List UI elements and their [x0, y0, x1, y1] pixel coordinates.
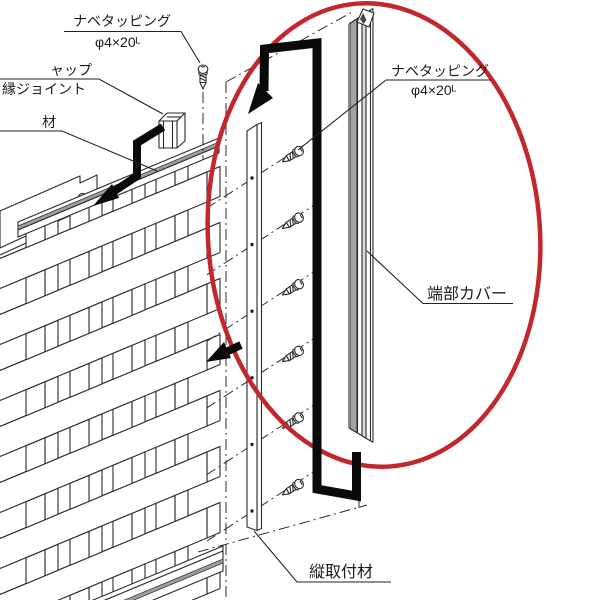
- label-side-screw-name: ナベタッピング: [391, 63, 489, 79]
- screw-axis-line: [207, 467, 321, 541]
- slat-end-cap: [207, 391, 220, 427]
- screw-axis-line: [207, 400, 321, 474]
- slat-end-cap: [207, 503, 220, 539]
- tapping-screw-icon: [280, 345, 305, 366]
- label-rail-member: 材: [42, 114, 56, 130]
- routing-arrow: [248, 43, 357, 496]
- label-top-screw-size: φ4×20ᴸ: [95, 34, 141, 50]
- label-end-cover: 端部カバー: [427, 285, 507, 303]
- slat-end-cap: [207, 447, 220, 483]
- leader-side-screw: [298, 80, 491, 150]
- screw-entry-dot: [250, 176, 253, 179]
- label-top-screw-name: ナベタッピング: [73, 13, 171, 29]
- cover-light-band: [363, 13, 366, 438]
- routing-arrowhead-icon: [248, 83, 273, 114]
- label-joint: 縁ジョイント: [2, 81, 86, 97]
- label-vertical-mount: 縦取付材: [309, 563, 373, 581]
- diagram-canvas: ナベタッピング φ4×20ᴸ ャップ 縁ジョイント 材 ナベタッピング φ4×2…: [0, 0, 600, 600]
- vertical-mount-strip: [247, 123, 262, 531]
- screw-entry-dot: [250, 243, 253, 246]
- cover-gray-band: [351, 19, 357, 432]
- projection-lines: [198, 11, 367, 600]
- screw-axis-lines: [207, 134, 321, 541]
- screw-axis-line: [207, 201, 321, 275]
- tapping-screw-icon: [280, 278, 305, 299]
- top-tapping-screw-icon: [198, 65, 208, 89]
- tapping-screw-icon: [280, 211, 305, 232]
- screw-entry-dot: [250, 509, 253, 512]
- tapping-screw-icon: [280, 478, 305, 499]
- label-side-screw-size: φ4×20ᴸ: [411, 82, 457, 98]
- cover-top-hook: [357, 9, 374, 27]
- boundary-dash-bottom-diagonal: [198, 505, 367, 552]
- screw-entry-dot: [250, 443, 253, 446]
- end-cover: [349, 8, 374, 442]
- assembly-diagram: ナベタッピング φ4×20ᴸ ャップ 縁ジョイント 材 ナベタッピング φ4×2…: [0, 0, 600, 600]
- screw-entry-dot: [250, 310, 253, 313]
- label-cap: ャップ: [50, 62, 92, 78]
